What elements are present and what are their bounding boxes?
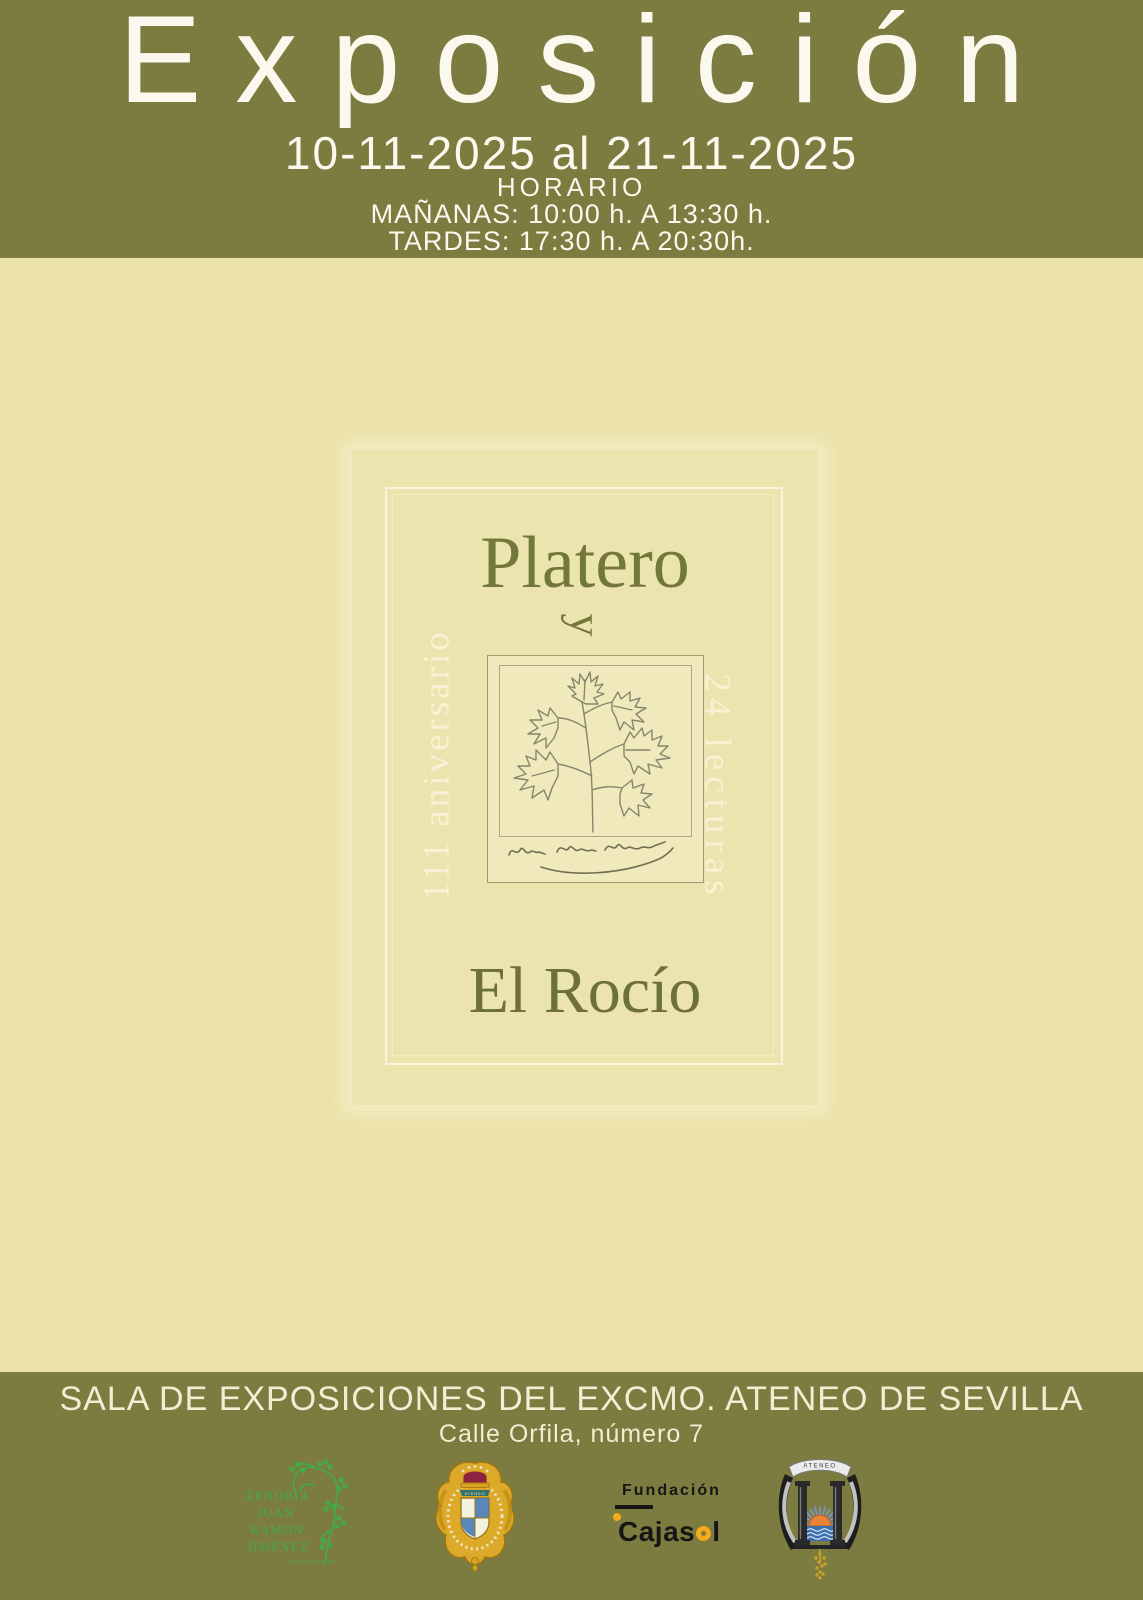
artwork-conjunction: y bbox=[562, 614, 608, 637]
header-band: Exposición 10-11-2025 al 21-11-2025 HORA… bbox=[0, 0, 1143, 258]
zenobia-line: RAMÓN bbox=[250, 1522, 303, 1537]
plant-sketch-box bbox=[487, 655, 704, 883]
venue-name: SALA DE EXPOSICIONES DEL EXCMO. ATENEO D… bbox=[0, 1380, 1143, 1419]
artwork-subtitle: El Rocío bbox=[352, 958, 818, 1024]
ateneo-sevilla-emblem-logo: ATENEO bbox=[775, 1454, 865, 1580]
signature-icon bbox=[498, 831, 695, 877]
cajasol-text: Cajas bbox=[618, 1516, 695, 1547]
poster-title: Exposición bbox=[0, 0, 1143, 124]
schedule-afternoon: TARDES: 17:30 h. A 20:30h. bbox=[0, 226, 1143, 257]
zenobia-line: JIMÉNEZ bbox=[247, 1539, 308, 1554]
fundacion-cajasol-logo: Fundación Cajasl bbox=[612, 1482, 742, 1548]
zenobia-sublabel: FUNDACIÓN bbox=[288, 1558, 335, 1566]
shield-icon bbox=[461, 1498, 489, 1539]
cajasol-wordmark: Cajasl bbox=[612, 1516, 742, 1548]
artwork-title: Platero bbox=[352, 526, 818, 600]
ateneo-gold-crest-logo: ATENEO bbox=[430, 1458, 520, 1572]
cajasol-fundacion-label: Fundación bbox=[612, 1482, 742, 1500]
cajasol-text: l bbox=[712, 1516, 720, 1547]
footer-band: SALA DE EXPOSICIONES DEL EXCMO. ATENEO D… bbox=[0, 1372, 1143, 1600]
crest-banner-label: ATENEO bbox=[465, 1491, 486, 1496]
artwork-area: Platero y 111 aniversario 24 lecturas bbox=[0, 258, 1143, 1372]
parsley-sprig-icon bbox=[500, 666, 691, 834]
venue-address: Calle Orfila, número 7 bbox=[0, 1420, 1143, 1449]
cajasol-rule bbox=[615, 1505, 653, 1509]
cajasol-yellow-dot-icon bbox=[613, 1513, 621, 1521]
cajasol-yellow-o-icon bbox=[696, 1526, 711, 1541]
sea-icon bbox=[806, 1526, 835, 1541]
zenobia-line: ZENOBIA bbox=[246, 1488, 310, 1503]
emblem-scroll-label: ATENEO bbox=[803, 1464, 836, 1470]
fundacion-zenobia-jrj-logo: ZENOBIA JUAN RAMÓN JIMÉNEZ FUNDACIÓN bbox=[240, 1460, 360, 1574]
sun-icon bbox=[809, 1515, 831, 1526]
gold-tassel-icon bbox=[814, 1549, 826, 1580]
zenobia-line: JUAN bbox=[257, 1505, 294, 1520]
exhibition-poster: Exposición 10-11-2025 al 21-11-2025 HORA… bbox=[0, 0, 1143, 1600]
anniversary-vertical-label: 111 aniversario bbox=[416, 629, 459, 900]
